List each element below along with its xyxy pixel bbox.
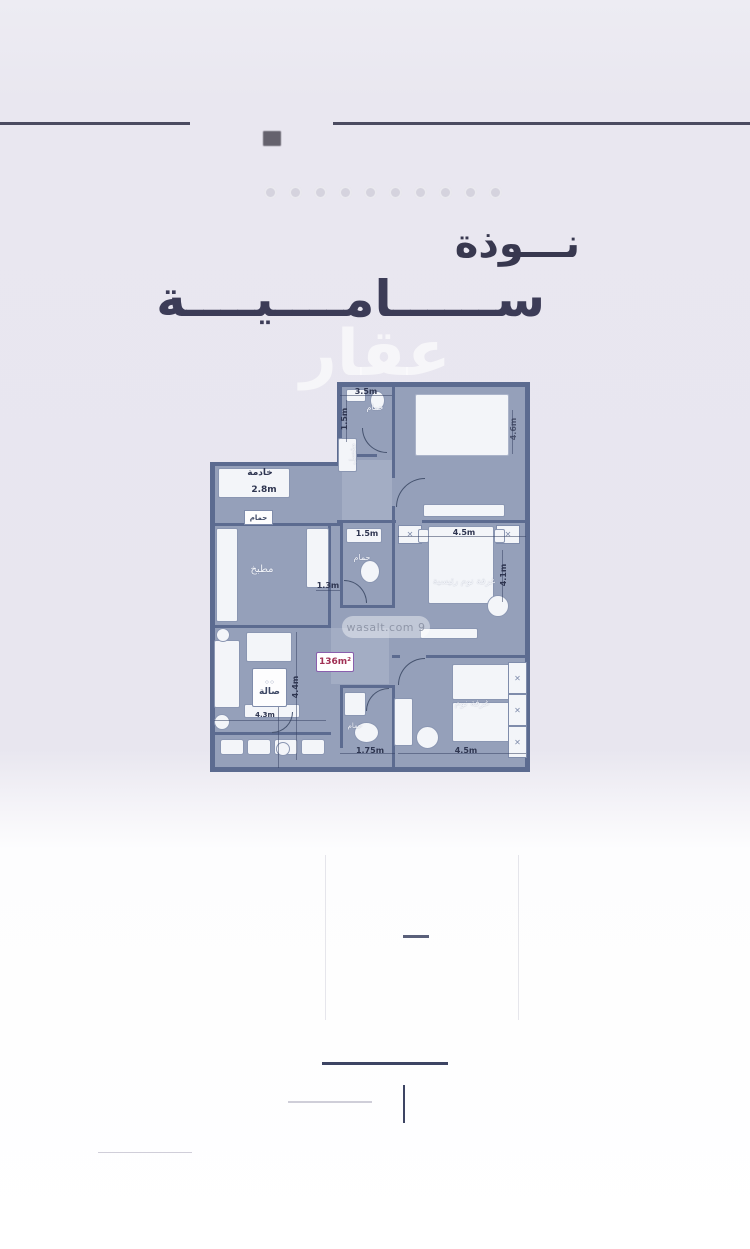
closet-strip-icon	[423, 504, 505, 517]
brand-watermark: عقار	[300, 322, 451, 386]
room-label-kitchen: مطبخ	[240, 564, 284, 575]
dot-icon	[364, 186, 377, 199]
dimension-living-height: 4.4m	[292, 670, 302, 704]
wall	[210, 523, 340, 526]
room-label-bedroom: غرفة نوم	[450, 700, 494, 710]
room-label-master-bedroom: غرفة نوم رئيسية	[420, 578, 508, 588]
chair-icon	[416, 726, 439, 749]
faded-dot-row	[264, 186, 502, 199]
dot-icon	[389, 186, 402, 199]
dimension-maid-width: 2.8m	[244, 486, 284, 495]
dot-icon	[489, 186, 502, 199]
faded-dash	[403, 935, 429, 938]
wall	[392, 523, 395, 608]
header-rule-right	[333, 122, 750, 125]
wall	[340, 605, 395, 608]
room-label-maid: خادمة	[238, 469, 282, 478]
room-label-bath-bottom: حمام	[343, 723, 367, 731]
wall	[210, 625, 331, 628]
faded-panel-edge	[325, 855, 326, 1020]
faded-rule-light	[288, 1101, 372, 1103]
sofa-icon	[214, 640, 240, 708]
lamp-icon	[216, 628, 230, 642]
dimension-line	[316, 590, 340, 591]
room-label-washbasin: مغسل	[349, 435, 361, 473]
dimension-line	[214, 720, 326, 721]
dot-icon	[414, 186, 427, 199]
site-watermark: wasalt.com 9	[342, 616, 430, 638]
dimension-master-width: 4.5m	[448, 529, 480, 537]
dimension-topright-height: 4.6m	[510, 412, 520, 446]
dot-icon	[289, 186, 302, 199]
kitchen-counter-icon	[306, 528, 329, 588]
dimension-bath-bottom-width: 1.75m	[350, 747, 390, 755]
closet-icon	[508, 694, 527, 726]
dimension-top-width: 3.5m	[348, 388, 384, 396]
closet-icon	[508, 662, 527, 694]
room-label-maid-bath: حمام	[244, 510, 273, 525]
room-label-bath-top: حمام	[358, 404, 392, 413]
faded-rule	[322, 1062, 448, 1065]
dot-icon	[264, 186, 277, 199]
wall	[340, 523, 343, 605]
table-icon	[246, 632, 292, 662]
dimension-master-height: 4.1m	[500, 558, 510, 592]
title-line-1: نـــوذة	[455, 224, 580, 264]
toilet-icon	[360, 560, 380, 583]
dot-icon	[339, 186, 352, 199]
faded-rule-light	[98, 1152, 192, 1153]
dimension-bath-mid-width: 1.5m	[352, 530, 382, 538]
wall	[210, 732, 331, 735]
rug-icon	[415, 394, 509, 456]
dot-icon	[439, 186, 452, 199]
chair-icon	[487, 595, 509, 617]
room-label-bath-mid: حمام	[348, 554, 376, 563]
door-opening	[396, 520, 422, 523]
kitchen-counter-icon	[216, 528, 238, 622]
wall	[210, 767, 530, 772]
area-badge: 136m²	[316, 652, 354, 672]
room-label-living: صالة	[259, 687, 280, 697]
wall	[210, 462, 342, 466]
shower-icon	[344, 692, 366, 716]
living-room-label-box: ◦◦ صالة	[252, 668, 287, 707]
dot-icon	[314, 186, 327, 199]
furniture-glyph-icon: ◦◦	[264, 678, 274, 687]
plant-icon	[214, 714, 230, 730]
desk-icon	[394, 698, 413, 746]
floor-plan: حمام مغسل خادمة 2.8m حمام مطبخ حمام غرفة…	[210, 382, 531, 772]
dimension-living-width: 4.3m	[250, 712, 280, 719]
header-rule-left	[0, 122, 190, 125]
door-opening	[392, 478, 395, 506]
bed-icon	[452, 664, 512, 700]
dot-icon	[464, 186, 477, 199]
wall	[340, 688, 343, 748]
dimension-hall-width: 1.3m	[314, 582, 342, 590]
promo-slide: { "header": { "title_line1": "نـــوذة", …	[0, 0, 750, 1249]
dimension-entry-height: 1.5m	[341, 404, 351, 434]
faded-vertical-rule	[403, 1085, 405, 1123]
wall	[337, 520, 530, 523]
bed-icon	[428, 526, 494, 604]
header-square-mark	[263, 131, 281, 146]
balcony-sofa-icon	[220, 739, 325, 755]
faded-panel-edge	[518, 855, 519, 1020]
dimension-bedroom-width: 4.5m	[450, 747, 482, 755]
